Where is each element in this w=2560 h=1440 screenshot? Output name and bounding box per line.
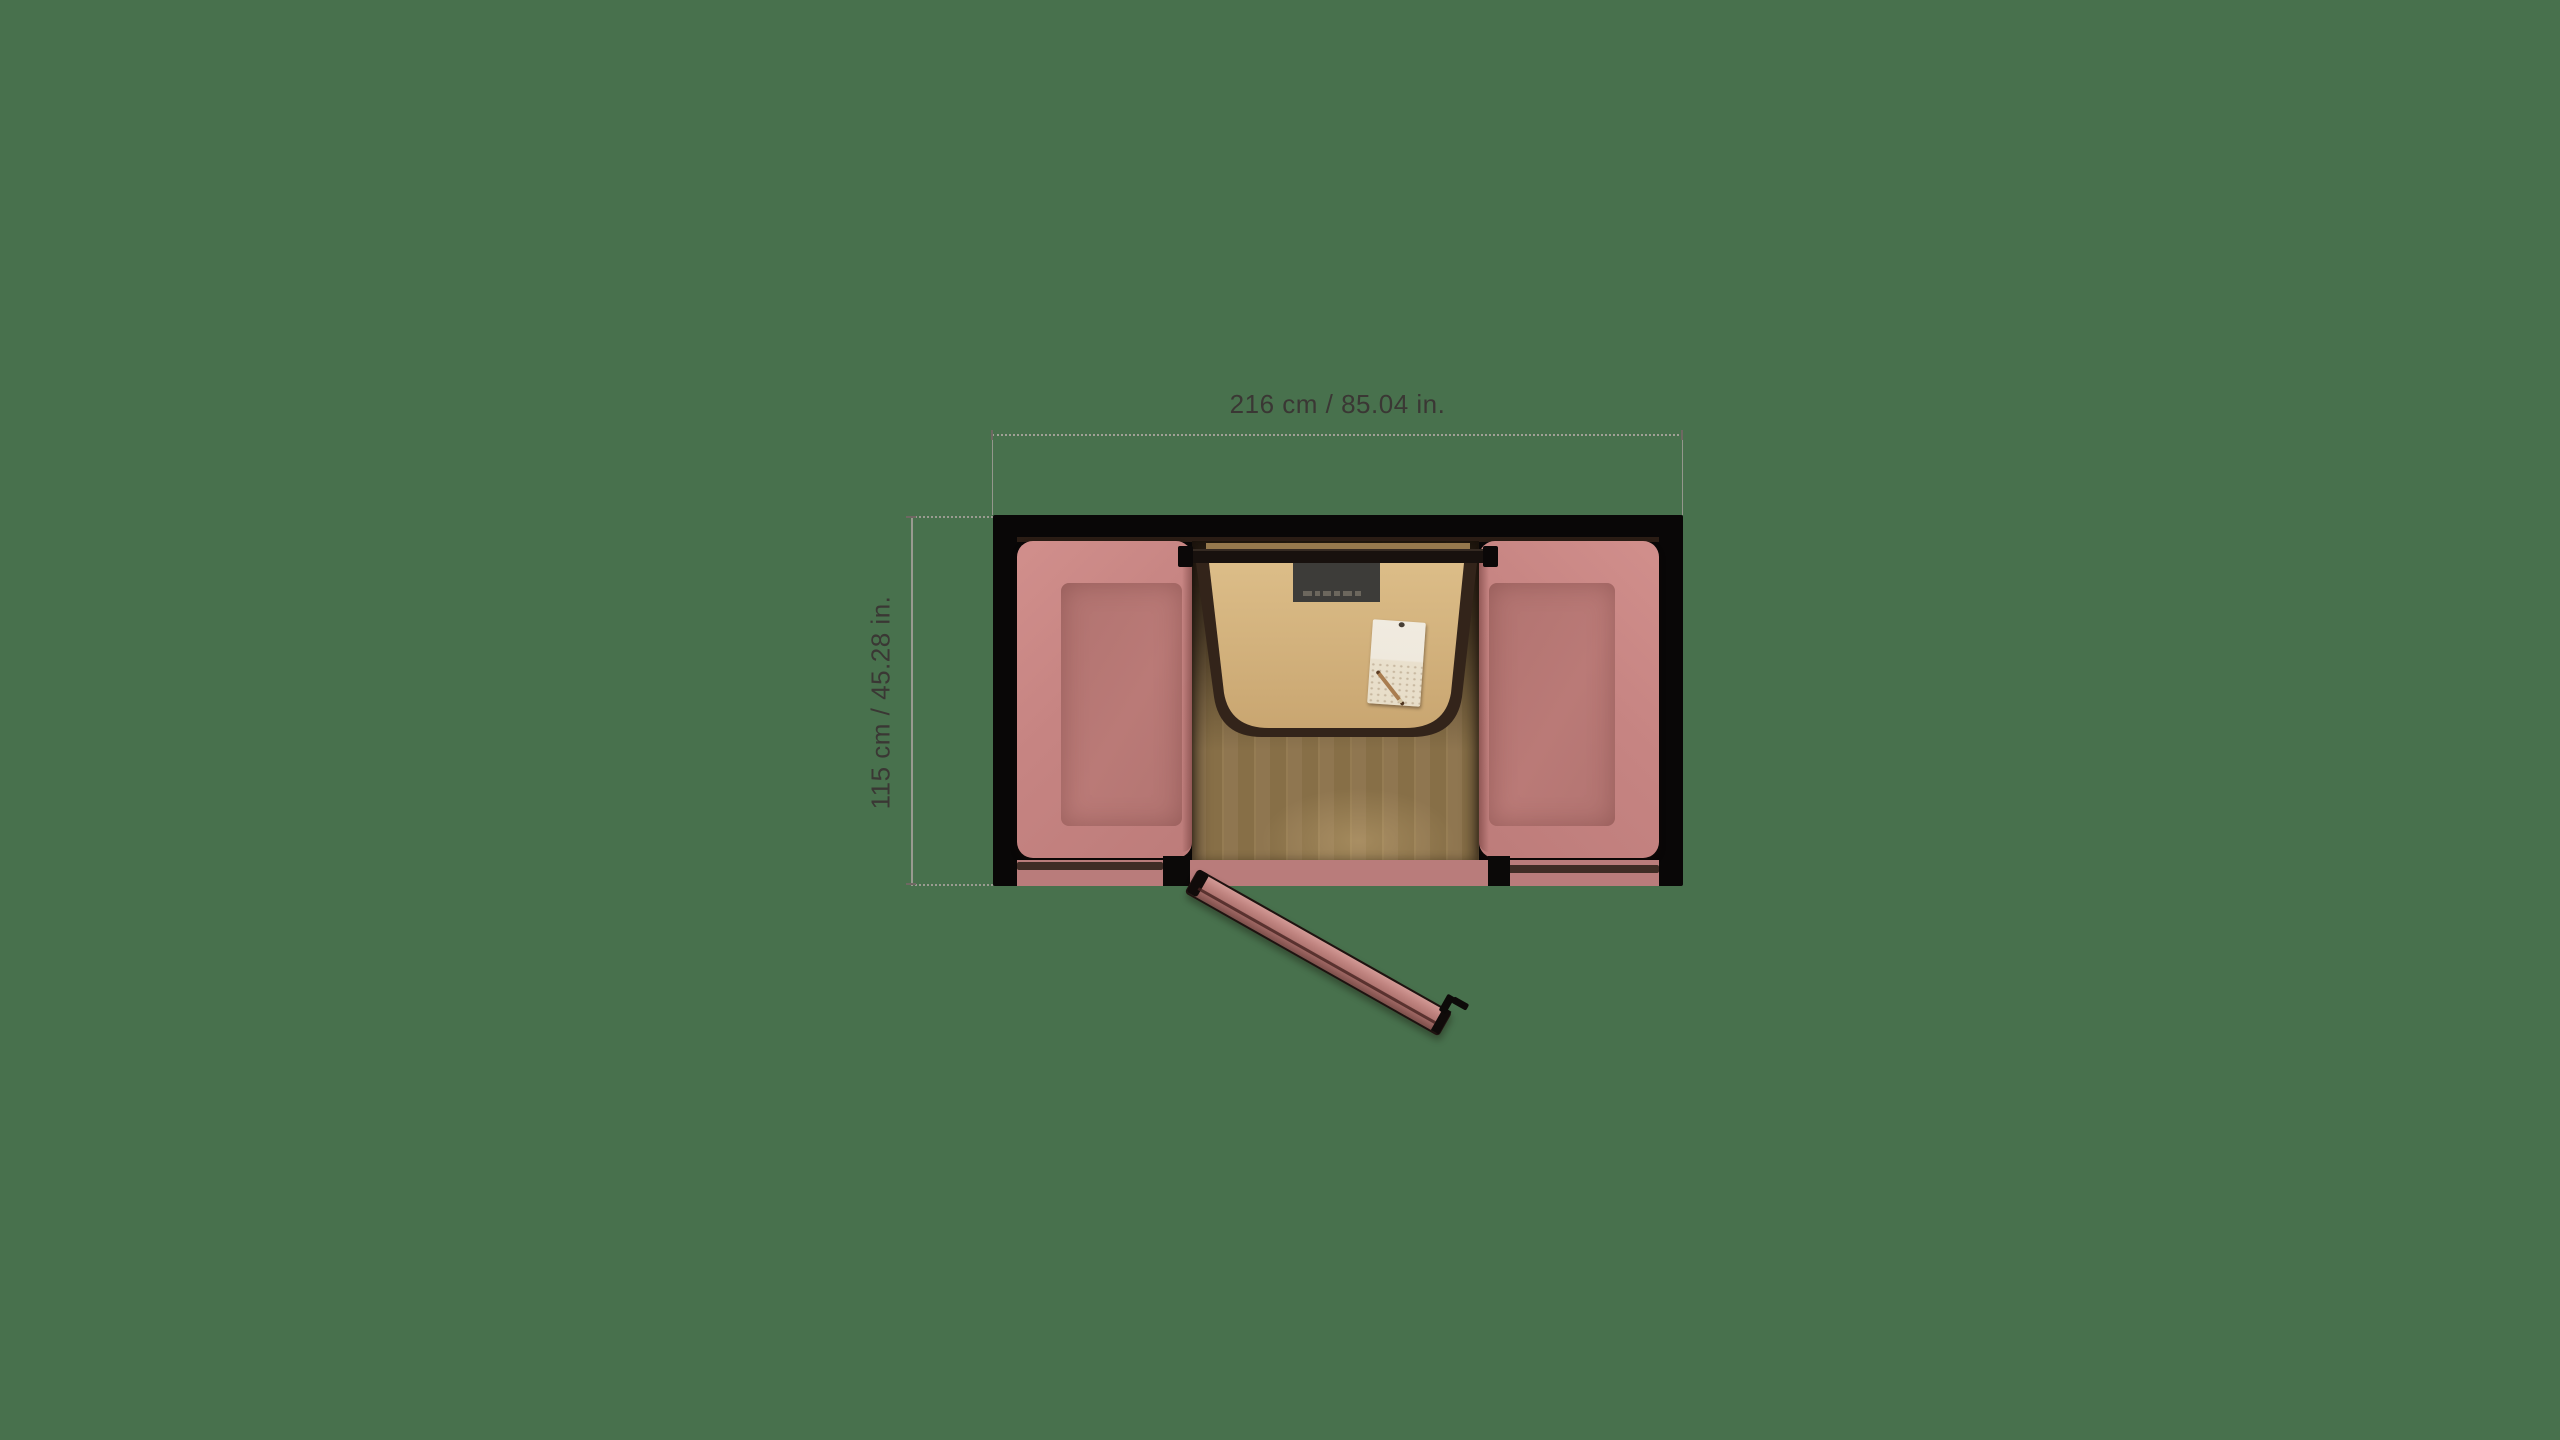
wall-rail-cap-left: [1178, 546, 1193, 567]
width-tick-left: [991, 430, 993, 440]
paper-texture: [1367, 661, 1423, 707]
floor-plan-canvas: 216 cm / 85.04 in. 115 cm / 45.28 in.: [0, 0, 2560, 1440]
width-extension-line-right: [1682, 435, 1683, 515]
height-dimension-line: [911, 517, 913, 884]
width-extension-line-left: [992, 435, 993, 515]
height-extension-line-bottom: [911, 884, 993, 886]
width-dimension-line: [992, 434, 1683, 436]
door-handle: [1439, 994, 1455, 1014]
bottom-wall-panel: [1017, 860, 1659, 886]
width-tick-right: [1681, 430, 1683, 440]
door-hinge-post: [1163, 856, 1190, 886]
table-assembly: [1178, 541, 1498, 747]
door-latch-post: [1488, 856, 1510, 886]
wall-rail-cap-right: [1483, 546, 1498, 567]
bottom-panel-rail-right: [1505, 865, 1659, 873]
height-dimension-label: 115 cm / 45.28 in.: [866, 583, 897, 823]
wall-rail-highlight: [1184, 549, 1492, 551]
right-sofa-seat: [1489, 583, 1615, 826]
monitor: [1293, 563, 1380, 602]
height-extension-line-top: [911, 516, 993, 518]
swing-door-open: [1184, 868, 1452, 1036]
height-tick-bottom: [906, 883, 916, 885]
pod-walls: [993, 515, 1683, 886]
left-sofa: [1017, 541, 1192, 858]
left-sofa-seat: [1061, 583, 1182, 826]
height-tick-top: [906, 516, 916, 518]
right-sofa: [1479, 541, 1659, 858]
table-graphic: [1178, 541, 1498, 747]
width-dimension-label: 216 cm / 85.04 in.: [992, 389, 1683, 420]
door-panel-seam: [1198, 887, 1436, 1024]
paper-clip-dot: [1399, 622, 1405, 627]
door-handle-flange: [1451, 996, 1469, 1010]
bottom-panel-rail-left: [1017, 862, 1163, 870]
wall-rail: [1180, 549, 1496, 563]
